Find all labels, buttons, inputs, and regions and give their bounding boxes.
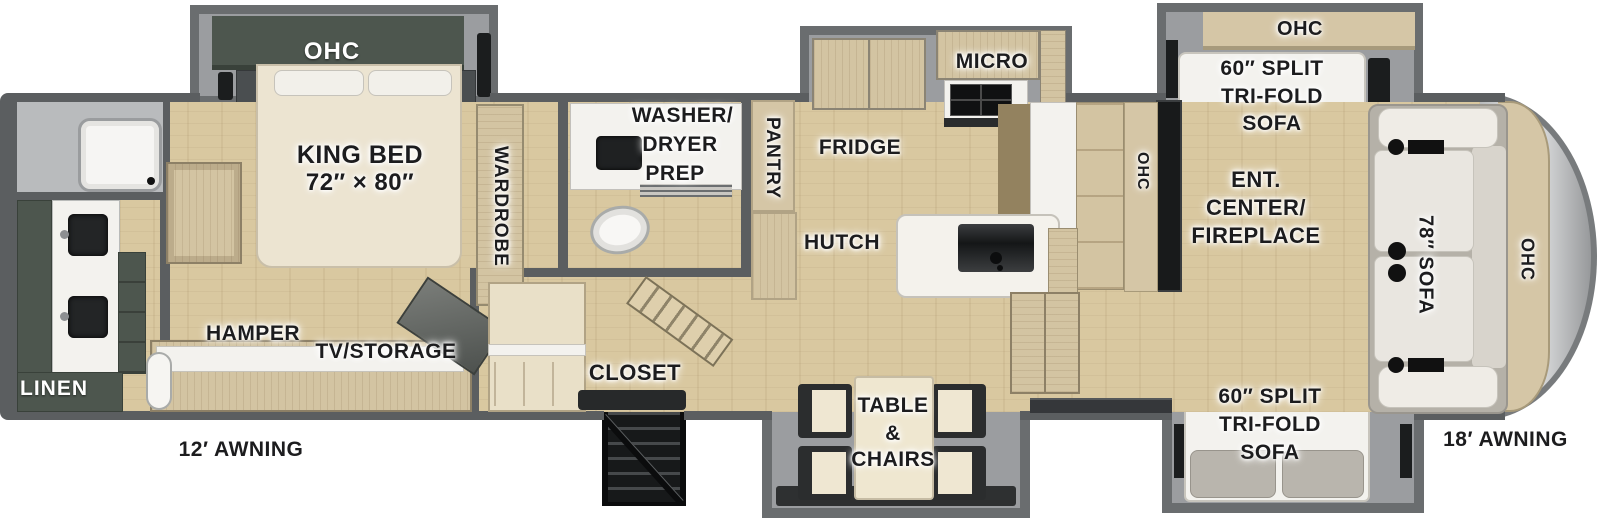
island-end-cabinet (1048, 228, 1078, 296)
bed-pillow-left (274, 70, 364, 96)
micro-label: MICRO (932, 50, 1052, 73)
front-top-slide-window-right (1368, 58, 1390, 106)
hamper-bin (146, 352, 172, 410)
washer-dryer-vent (640, 184, 732, 197)
dinette-label-3: CHAIRS (833, 448, 953, 471)
front-top-ohc-label: OHC (1240, 18, 1360, 40)
island-faucet (990, 252, 1002, 264)
midbath-left-wall (558, 102, 568, 277)
bedroom-slide-window-right (477, 33, 491, 97)
wall-bottom-1 (8, 411, 604, 420)
king-bed-label-1: KING BED (268, 142, 452, 170)
front-bottom-slide-window-right (1400, 424, 1412, 478)
sofa-top-label-1: 60″ SPLIT (1192, 57, 1352, 80)
shower-drain (147, 177, 155, 185)
sofa-78-cupholder-bottom (1388, 357, 1404, 373)
vanity-drawers-right (118, 252, 146, 374)
bedroom-ohc-label: OHC (262, 38, 402, 66)
sofa-78-tray-top (1408, 140, 1444, 154)
hamper-label: HAMPER (193, 322, 313, 345)
kitchen-cabinet-column (1076, 102, 1124, 290)
kitchen-counter-band (998, 104, 1032, 230)
closet-label: CLOSET (575, 361, 695, 385)
wall-bottom-2 (684, 411, 772, 420)
king-bed-label-2: 72″ × 80″ (268, 170, 452, 196)
rv-floorplan: OHC KING BED 72″ × 80″ WARDROBE LINEN HA… (0, 0, 1600, 528)
sofa-78-backrest (1472, 146, 1506, 368)
bed-pillow-right (368, 70, 452, 96)
hutch-cabinet (751, 212, 797, 300)
sofa-bottom-label-3: SOFA (1190, 441, 1350, 464)
sofa-78-cupholder-mid-2 (1388, 264, 1406, 282)
fridge-door-split (868, 40, 870, 108)
washer-dryer-label-3: PREP (600, 162, 750, 185)
awning-left-label: 12′ AWNING (166, 438, 316, 461)
vanity-sink-1 (68, 214, 108, 256)
bedroom-dresser (166, 162, 242, 264)
vanity-sink-1-faucet (60, 230, 69, 239)
sofa-78-cupholder-top (1388, 139, 1404, 155)
bath-divider-wall (17, 192, 163, 200)
hutch-label: HUTCH (782, 231, 902, 254)
fridge-label: FRIDGE (800, 136, 920, 159)
sofa-78-tray-bottom (1408, 358, 1444, 372)
sofa-78-label: 78″ SOFA (1408, 198, 1442, 332)
linen-label: LINEN (6, 377, 102, 401)
washer-dryer-label-2: DRYER (600, 133, 760, 156)
wall-top-4 (1414, 93, 1505, 102)
kitchen-counter-top (1030, 102, 1078, 232)
front-cap-ohc-label: OHC (1512, 224, 1542, 294)
rear-galley-counter (1030, 398, 1172, 413)
wall-top-1 (8, 93, 200, 102)
kitchen-ohc-label: OHC (1128, 142, 1156, 200)
ent-center-label-1: ENT. (1176, 168, 1336, 192)
vanity-sink-2 (68, 296, 108, 338)
tv-storage-label: TV/STORAGE (296, 340, 476, 363)
entry-mat (578, 390, 686, 410)
sofa-top-label-2: TRI-FOLD (1192, 85, 1352, 108)
rear-cap (0, 93, 17, 420)
vanity-cabinet-left (17, 200, 52, 374)
awning-right-label: 18′ AWNING (1428, 428, 1583, 451)
sofa-bottom-label-1: 60″ SPLIT (1190, 385, 1350, 408)
vanity-sink-2-faucet (60, 312, 69, 321)
closet-top-band (488, 344, 586, 356)
ent-center-label-2: CENTER/ (1176, 196, 1336, 220)
bedroom-slide-window-left (218, 72, 233, 100)
sofa-bottom-label-2: TRI-FOLD (1190, 413, 1350, 436)
island-sink-counter (958, 224, 1034, 272)
pantry-label: PANTRY (752, 106, 792, 210)
midbath-right-wall (741, 102, 751, 277)
buffet-door-split (1044, 294, 1046, 392)
washer-dryer-label-1: WASHER/ (600, 104, 765, 127)
dinette-label-1: TABLE (833, 394, 953, 417)
dinette-label-2: & (833, 422, 953, 445)
ent-center-label-3: FIREPLACE (1176, 224, 1336, 248)
wall-top-3 (1063, 93, 1166, 102)
closet-panels (494, 362, 580, 406)
wardrobe-label: WARDROBE (480, 112, 520, 300)
sofa-top-label-3: SOFA (1192, 112, 1352, 135)
front-top-slide-window-left (1166, 40, 1178, 98)
sofa-78-cupholder-mid-1 (1388, 242, 1406, 260)
